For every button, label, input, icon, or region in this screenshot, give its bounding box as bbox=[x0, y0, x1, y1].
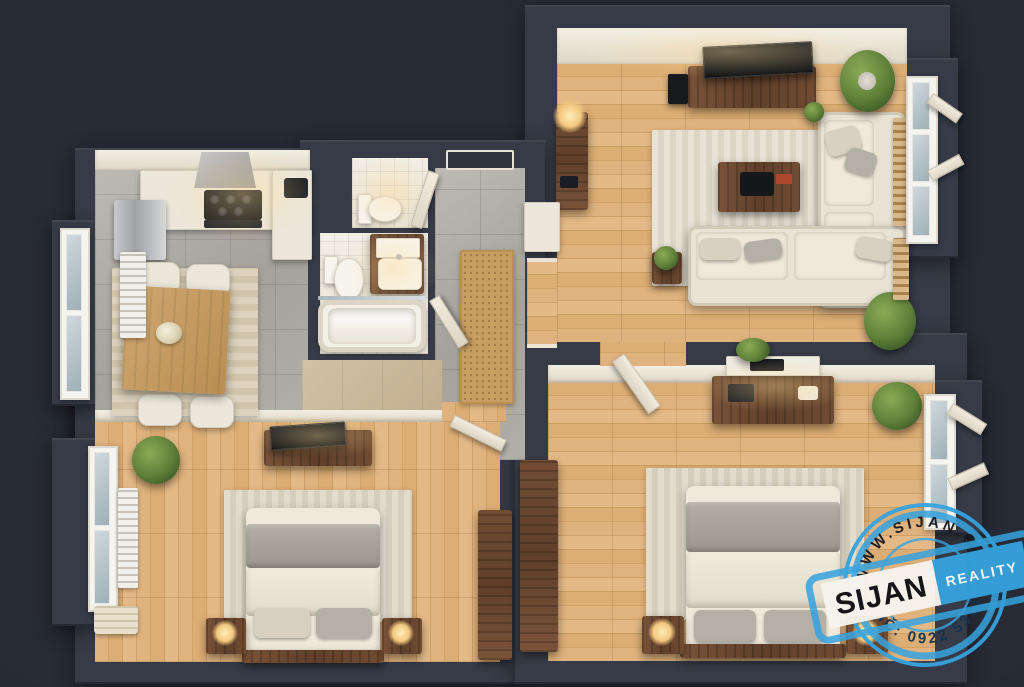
hall-runner-rug bbox=[460, 250, 514, 404]
flower-vase bbox=[156, 322, 182, 344]
decor-cloth bbox=[798, 386, 818, 400]
burner bbox=[226, 195, 235, 204]
plant-pot bbox=[858, 72, 876, 90]
bedroom-right-dresser bbox=[712, 376, 834, 424]
window-pane bbox=[912, 134, 930, 182]
living-radiator-low bbox=[893, 238, 909, 300]
speaker bbox=[668, 74, 688, 104]
window-pane bbox=[66, 315, 82, 392]
oven-front bbox=[204, 220, 262, 228]
vanity-sink bbox=[378, 258, 422, 290]
window-pane bbox=[912, 82, 930, 130]
bedroom-left-wardrobe bbox=[478, 510, 512, 660]
bedroom-right-wardrobe bbox=[520, 460, 558, 652]
shower-glass-screen bbox=[318, 296, 426, 300]
dining-chair bbox=[138, 394, 182, 426]
kitchen-window bbox=[60, 228, 90, 400]
book bbox=[776, 174, 792, 184]
burner bbox=[210, 195, 219, 204]
doorway-jamb bbox=[527, 344, 557, 348]
decor-books bbox=[728, 384, 754, 402]
doorway-jamb bbox=[527, 258, 557, 262]
kitchen-radiator bbox=[120, 252, 146, 338]
bedroom-right-plant bbox=[872, 382, 922, 430]
cooktop bbox=[204, 190, 262, 220]
burner bbox=[234, 207, 243, 216]
nightstand-lamp bbox=[648, 618, 676, 646]
wc-toilet-bowl bbox=[368, 196, 402, 222]
nightstand-lamp bbox=[212, 620, 238, 646]
window-pane bbox=[912, 186, 930, 236]
throw-pillow bbox=[700, 238, 740, 260]
tv bbox=[702, 41, 814, 79]
bed-left-headboard bbox=[242, 650, 384, 663]
burner bbox=[218, 207, 227, 216]
bed-right-pillow bbox=[694, 610, 756, 642]
side-table-plant bbox=[654, 246, 678, 270]
bed-left-pillow bbox=[316, 608, 372, 638]
dining-chair bbox=[190, 396, 234, 428]
small-plant-stand bbox=[804, 102, 824, 122]
living-edge-plant bbox=[736, 338, 770, 362]
coffee-table bbox=[718, 162, 800, 212]
bedroom-left-plant bbox=[132, 436, 180, 484]
towel-stack bbox=[94, 606, 138, 634]
fridge bbox=[114, 200, 166, 260]
window-pane bbox=[66, 234, 82, 311]
window-pane bbox=[94, 452, 110, 526]
range-hood bbox=[194, 152, 256, 188]
bath-toilet-bowl bbox=[334, 258, 364, 300]
decor-object bbox=[560, 176, 578, 188]
bedroom-left-radiator bbox=[118, 488, 138, 588]
faucet bbox=[396, 254, 402, 260]
bed-left-pillow bbox=[254, 608, 310, 638]
coffee-machine bbox=[284, 178, 308, 198]
entry-door bbox=[446, 150, 514, 170]
living-plant-bottom bbox=[864, 292, 916, 350]
floor-plan-scene: WWW.SIJAN.CZ IČ: 0922 5331 SIJAN REALITY bbox=[0, 0, 1024, 687]
doorway-hall-to-living bbox=[527, 262, 557, 344]
tray bbox=[740, 172, 774, 196]
burner bbox=[242, 195, 251, 204]
bed-left-blanket bbox=[246, 524, 380, 568]
bedroom-left-window bbox=[88, 446, 118, 612]
bathtub-interior bbox=[328, 308, 416, 344]
nightstand-lamp bbox=[388, 620, 414, 646]
hall-cabinet bbox=[524, 202, 560, 252]
floor-lamp bbox=[553, 99, 587, 133]
window-pane bbox=[94, 530, 110, 604]
